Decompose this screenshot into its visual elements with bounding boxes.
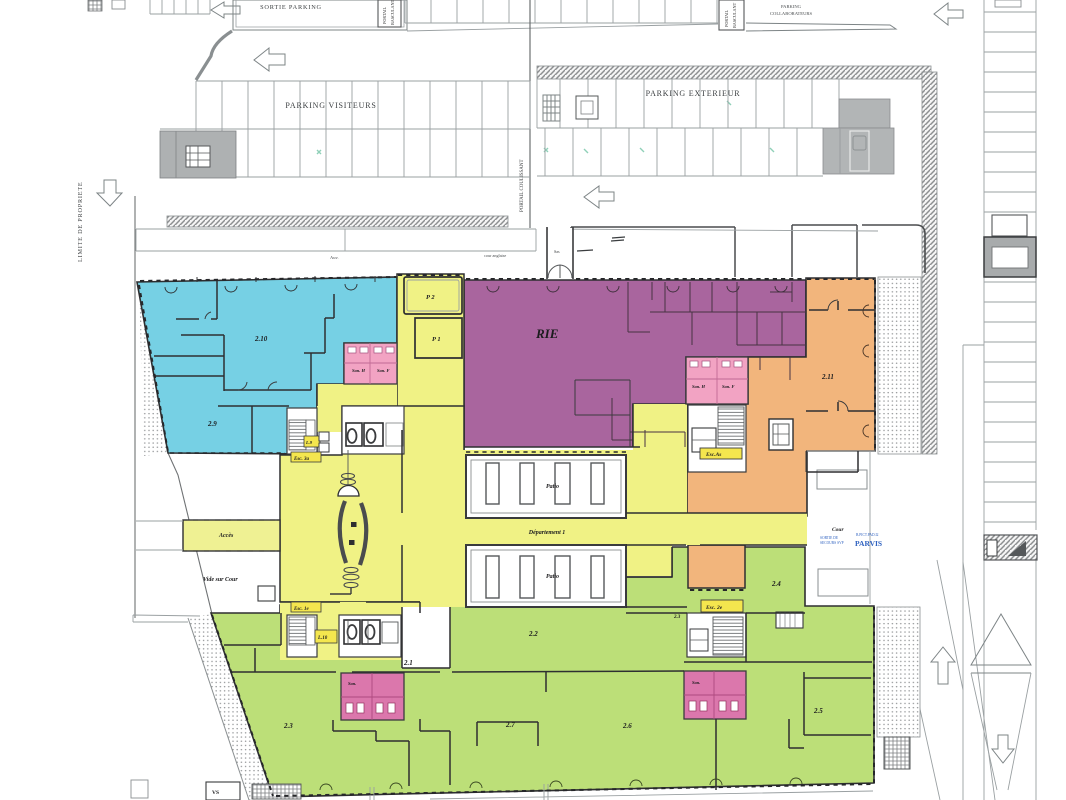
- svg-text:SECOURS SVP: SECOURS SVP: [820, 541, 844, 545]
- svg-text:Esc.As: Esc.As: [705, 452, 721, 458]
- svg-text:San. F: San. F: [377, 368, 390, 373]
- svg-text:San. F: San. F: [722, 384, 735, 389]
- svg-text:San.: San.: [692, 680, 700, 685]
- svg-text:RIE: RIE: [535, 326, 559, 341]
- svg-text:LIMITE DE PROPRIETE: LIMITE DE PROPRIETE: [77, 181, 84, 262]
- svg-text:PORTAIL: PORTAIL: [382, 6, 387, 24]
- svg-text:Vide sur Cour: Vide sur Cour: [203, 577, 238, 583]
- svg-text:2.9: 2.9: [207, 420, 217, 428]
- svg-text:2.4: 2.4: [771, 580, 781, 588]
- svg-text:San. H: San. H: [692, 384, 706, 389]
- svg-text:San.: San.: [348, 681, 356, 686]
- svg-text:Patio: Patio: [546, 574, 559, 580]
- svg-text:2.10: 2.10: [254, 335, 268, 343]
- svg-text:2.3: 2.3: [673, 615, 681, 620]
- svg-text:Auv.: Auv.: [330, 255, 339, 260]
- svg-text:Esc. 2e: Esc. 2e: [705, 605, 723, 611]
- svg-text:COLLABORATEURS: COLLABORATEURS: [770, 11, 813, 16]
- svg-text:PORTAIL COULISSANT: PORTAIL COULISSANT: [520, 159, 525, 212]
- svg-text:2.6: 2.6: [622, 722, 632, 730]
- svg-text:Esc. 3a: Esc. 3a: [293, 457, 310, 462]
- svg-text:2.2: 2.2: [528, 630, 538, 638]
- svg-text:VS: VS: [212, 790, 219, 796]
- svg-text:2.5: 2.5: [813, 707, 823, 715]
- svg-text:2.1: 2.1: [403, 659, 413, 667]
- svg-text:SORTIE DE: SORTIE DE: [820, 536, 839, 540]
- svg-text:SORTIE PARKING: SORTIE PARKING: [260, 4, 322, 11]
- svg-text:cour anglaise: cour anglaise: [484, 253, 506, 258]
- svg-text:PARVIS: PARVIS: [855, 539, 882, 548]
- svg-text:Esc. 1e: Esc. 1e: [293, 607, 310, 612]
- svg-text:2.7: 2.7: [505, 721, 515, 729]
- svg-text:B.PICT.PAD.I2: B.PICT.PAD.I2: [856, 533, 879, 537]
- svg-text:San. H: San. H: [352, 368, 366, 373]
- svg-text:P 1: P 1: [432, 336, 441, 343]
- svg-text:2.3: 2.3: [283, 722, 293, 730]
- svg-text:Accès: Accès: [218, 533, 234, 539]
- svg-text:PARKING EXTERIEUR: PARKING EXTERIEUR: [646, 89, 741, 98]
- svg-text:BASCULANT: BASCULANT: [732, 2, 737, 28]
- svg-text:L.10: L.10: [317, 636, 328, 641]
- svg-text:P 2: P 2: [426, 294, 435, 301]
- svg-text:PARKING: PARKING: [781, 4, 802, 9]
- svg-text:L.9: L.9: [305, 440, 313, 445]
- svg-text:Cour: Cour: [832, 527, 844, 533]
- svg-text:Sas: Sas: [554, 249, 560, 254]
- svg-text:Patio: Patio: [546, 484, 559, 490]
- svg-text:2.11: 2.11: [821, 373, 834, 381]
- svg-text:PORTAIL: PORTAIL: [724, 9, 729, 27]
- svg-text:BASCULANT: BASCULANT: [390, 0, 395, 25]
- svg-text:Département 1: Département 1: [528, 530, 566, 536]
- svg-text:PARKING VISITEURS: PARKING VISITEURS: [285, 101, 376, 110]
